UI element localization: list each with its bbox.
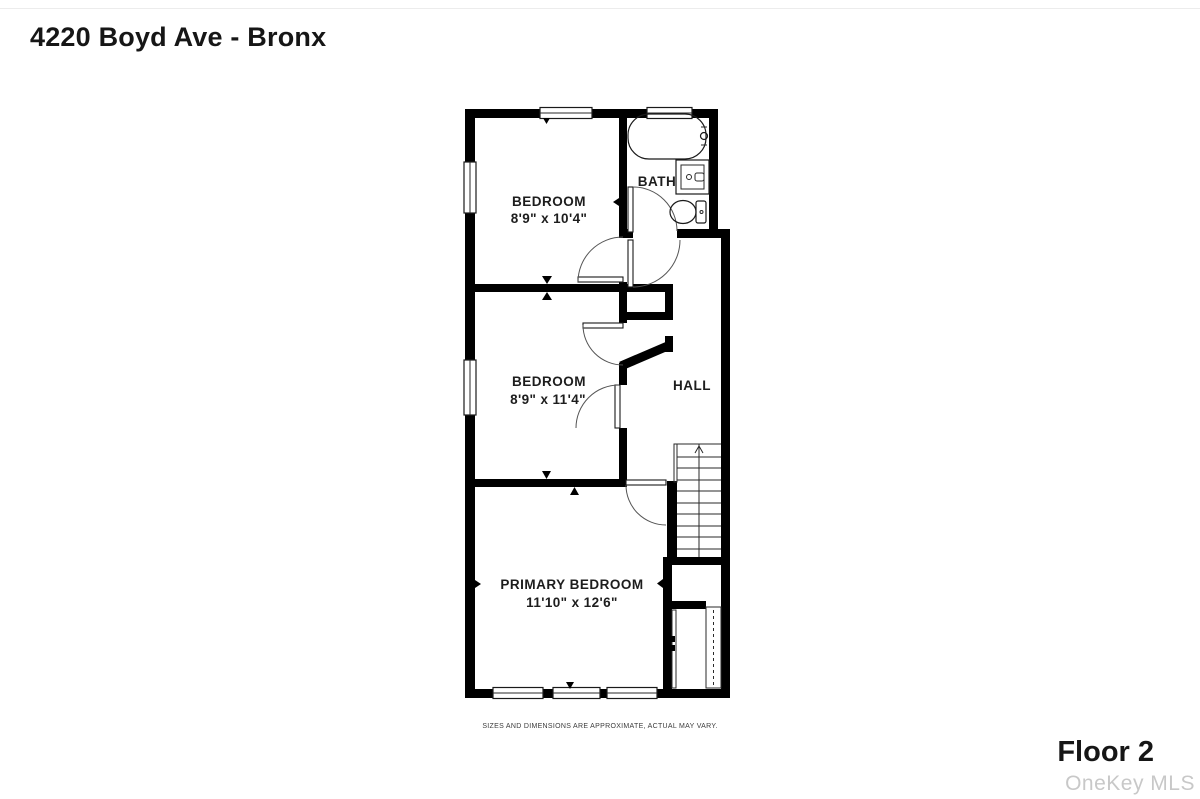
sink-vanity-icon [676,160,709,194]
bedroom1-label: BEDROOM [512,194,586,209]
floor-plan-page: 4220 Boyd Ave - Bronx [0,0,1200,799]
window-top-bath [647,108,692,119]
wall-divider-primary [465,479,627,487]
wall-landing-bottom [672,601,706,609]
tick-mark [543,118,550,124]
partition-nub [669,636,675,642]
wall-middle-seg4 [619,428,627,483]
bedroom2-label: BEDROOM [512,374,586,389]
tick-mark [542,471,551,479]
tick-mark [542,276,552,284]
door-bedroom2-upper [583,323,623,365]
partition-nub [669,645,675,651]
door-bedroom1 [578,237,623,282]
wall-diagonal [621,345,670,366]
door-hall-closet [628,240,680,287]
window-left-bedroom1 [464,162,476,213]
floor-plan-drawing: BEDROOM 8'9" x 10'4" BEDROOM 8'9" x 11'4… [0,0,1200,799]
tick-mark [570,487,579,495]
bedroom1-dimensions: 8'9" x 10'4" [511,211,588,226]
wall-middle-seg1 [619,109,627,233]
primary-bedroom-dimensions: 11'10" x 12'6" [526,595,618,610]
tick-mark [657,579,663,588]
wall-right-lower [721,229,730,698]
staircase [674,444,721,557]
wall-bath-bottom-right [677,229,710,238]
disclaimer-text: SIZES AND DIMENSIONS ARE APPROXIMATE, AC… [0,723,1200,730]
bathtub-icon [628,114,708,159]
wall-stairs-bottom [667,557,730,565]
bedroom2-dimensions: 8'9" x 11'4" [510,392,586,407]
floor-number-label: Floor 2 [1057,736,1154,769]
wall-stairs-left [667,481,677,565]
wall-divider-bedrooms [465,284,627,292]
window-left-bedroom2 [464,360,476,415]
wall-closet-bottom [627,312,673,320]
wall-primary-right [663,557,672,698]
tick-mark [475,580,481,588]
hall-label: HALL [673,378,711,393]
door-bath [628,187,677,232]
window-bottom-2 [553,688,600,699]
primary-bedroom-label: PRIMARY BEDROOM [500,577,643,592]
door-primary-bedroom [626,480,666,525]
window-bottom-1 [493,688,543,699]
bath-fixtures [628,114,709,224]
wall-right-upper [709,109,718,238]
tick-mark [613,198,619,206]
bath-label: BATH [638,174,677,189]
watermark-logo: OneKey MLS [1065,772,1195,796]
window-top-bedroom1 [540,108,592,119]
lower-right-well [669,607,721,688]
room-labels: BEDROOM 8'9" x 10'4" BEDROOM 8'9" x 11'4… [500,174,711,610]
window-bottom-3 [607,688,657,699]
tick-mark [542,292,552,300]
